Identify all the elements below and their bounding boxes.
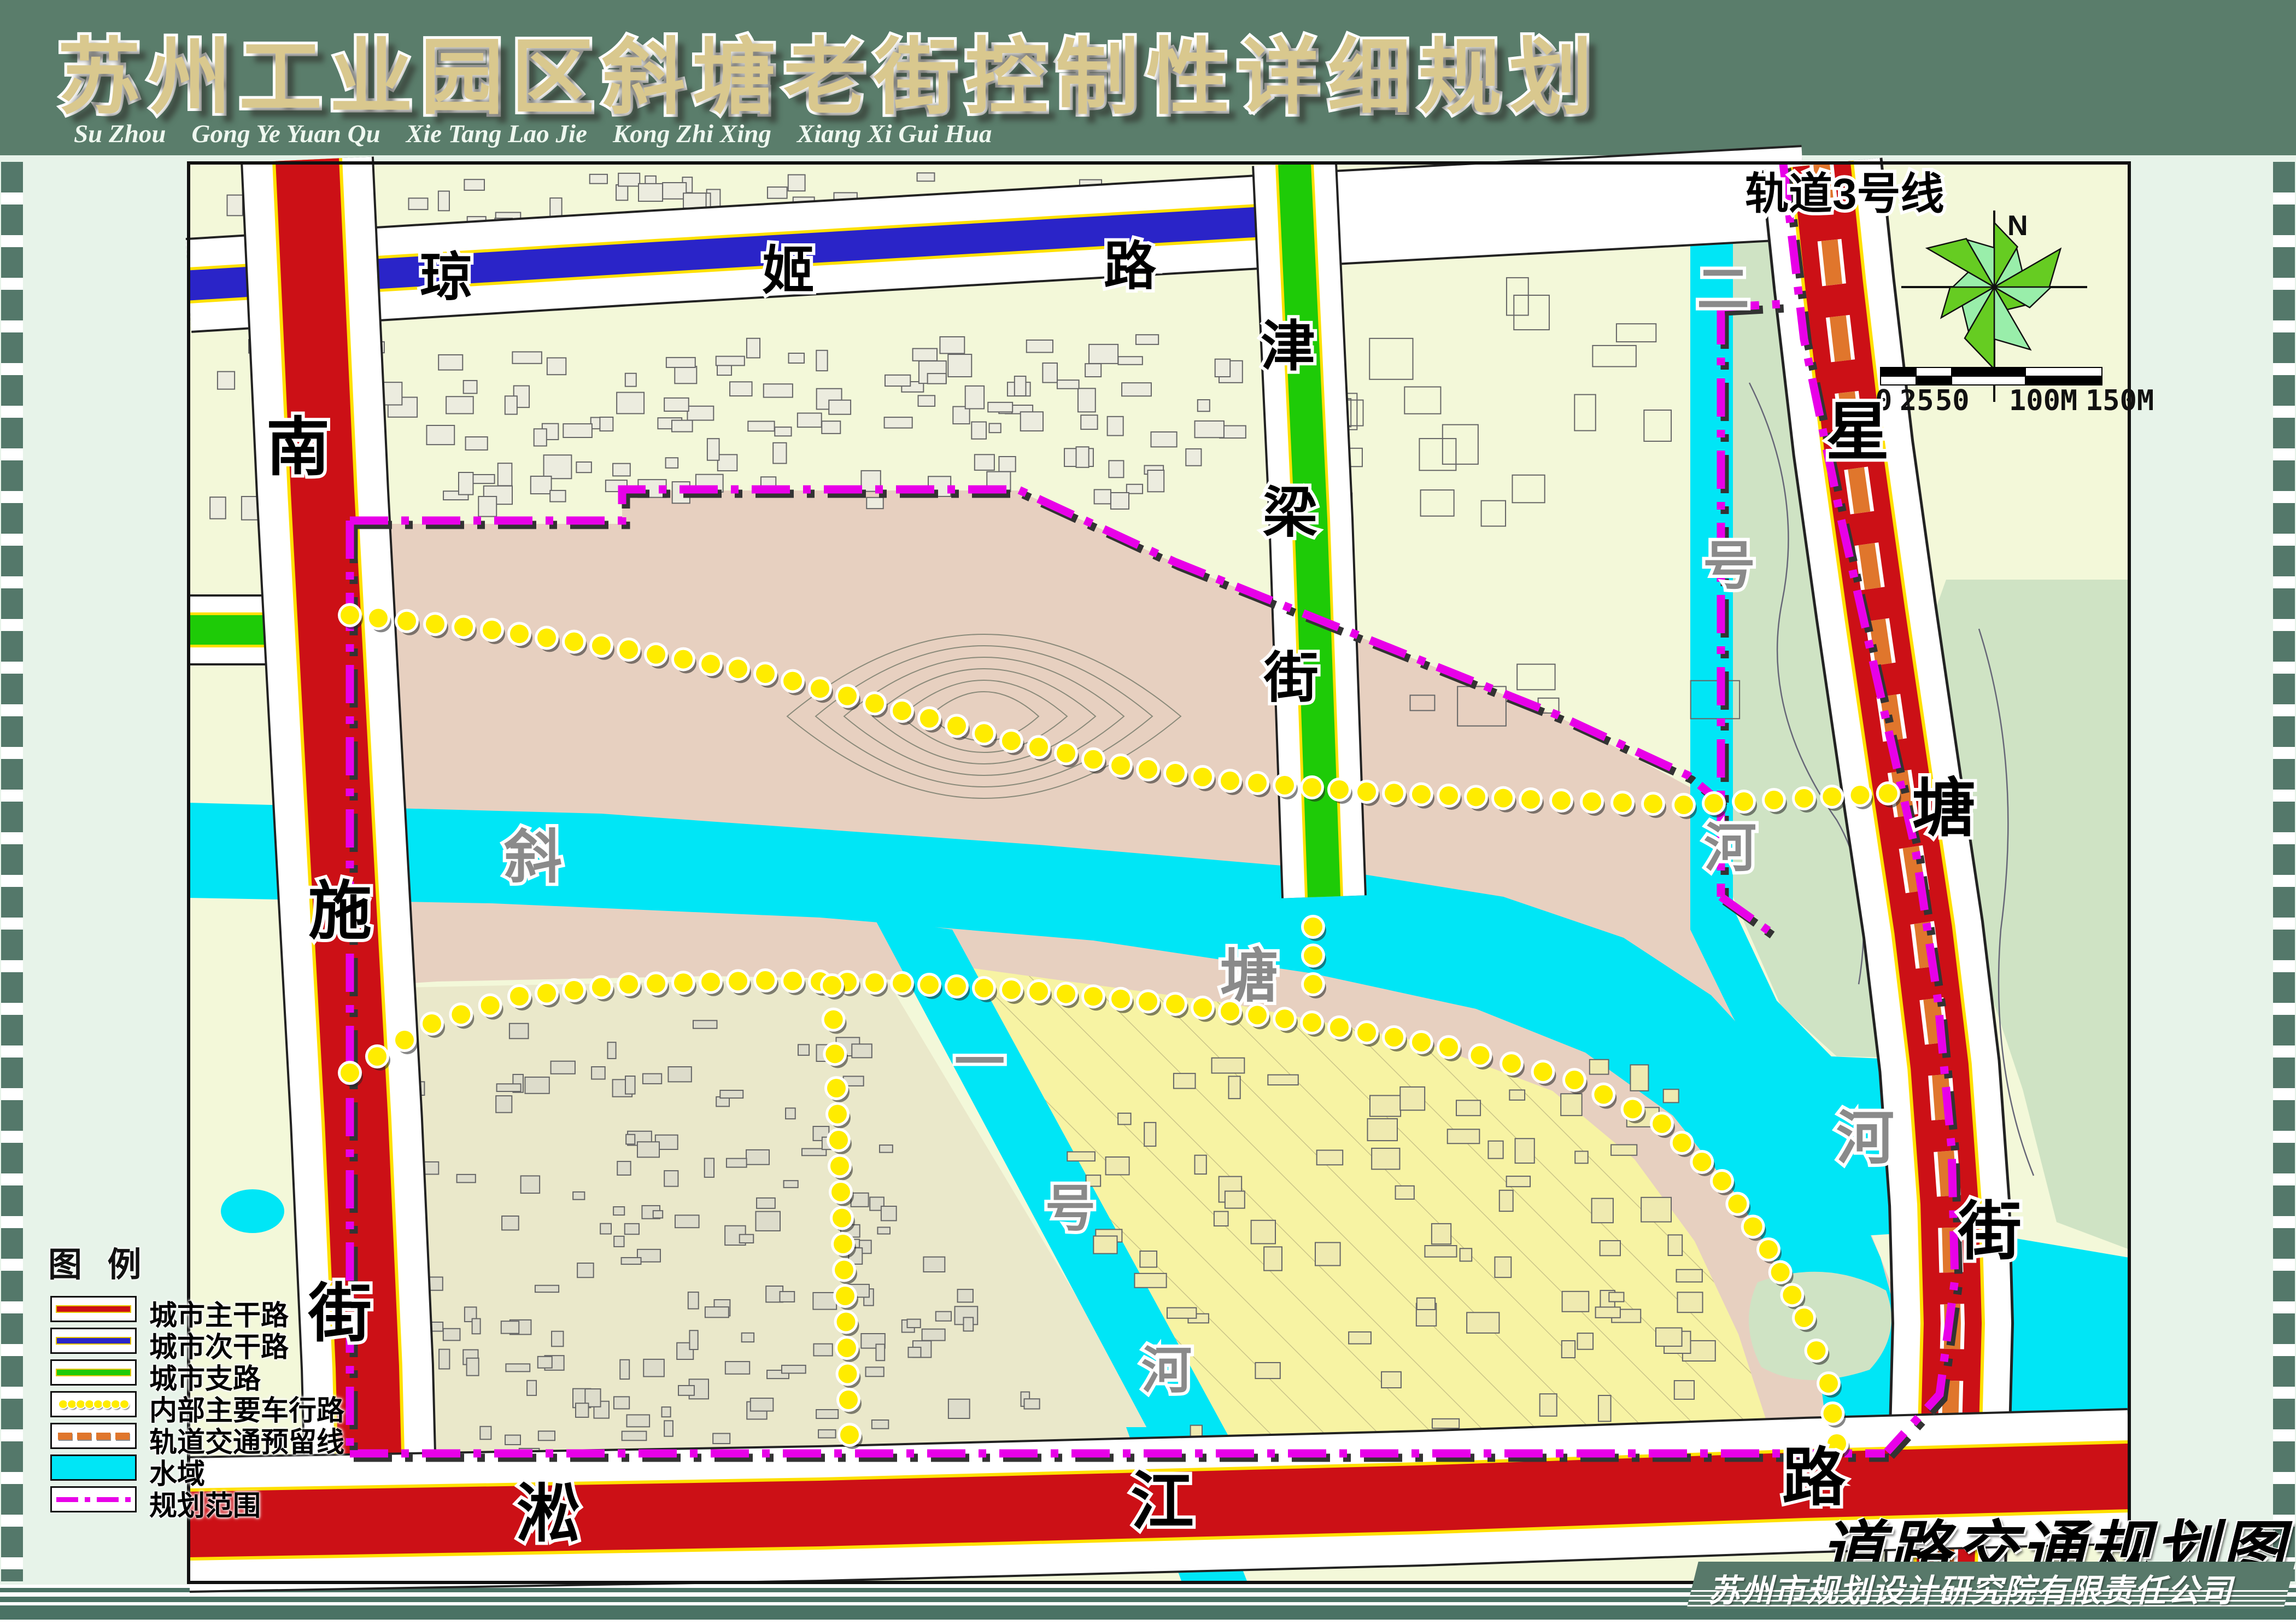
internal-road-dot xyxy=(1057,744,1075,763)
building xyxy=(576,1403,588,1417)
internal-road-dot xyxy=(1330,780,1349,799)
building xyxy=(1078,388,1096,412)
legend-dot xyxy=(59,1400,67,1408)
building xyxy=(600,1224,611,1234)
internal-road-dot xyxy=(1673,1134,1691,1152)
building xyxy=(637,1142,659,1157)
building xyxy=(948,1399,970,1418)
building xyxy=(675,366,696,383)
internal-road-dot xyxy=(1166,995,1185,1013)
building xyxy=(1255,1363,1280,1378)
building xyxy=(1668,1235,1683,1255)
internal-road-dot xyxy=(1771,1263,1790,1282)
scale-seg xyxy=(1952,376,2025,385)
building xyxy=(1609,1293,1624,1302)
building xyxy=(798,1044,809,1055)
legend-dash xyxy=(115,1433,130,1440)
building xyxy=(1598,1395,1611,1421)
building xyxy=(501,1321,519,1333)
building xyxy=(664,398,689,411)
building xyxy=(1174,1073,1196,1088)
building xyxy=(922,1329,945,1341)
building xyxy=(958,1289,973,1302)
internal-road-dot xyxy=(840,1426,859,1444)
building xyxy=(755,1212,780,1231)
building xyxy=(550,490,565,502)
building xyxy=(443,1329,460,1341)
building xyxy=(678,1386,694,1395)
map-label: 一 xyxy=(954,1035,1005,1090)
legend-swatch-line xyxy=(50,1296,137,1322)
legend-swatch-dashes xyxy=(50,1423,137,1449)
internal-road-dot xyxy=(647,974,665,993)
building xyxy=(1111,493,1129,509)
internal-road-dot xyxy=(1084,987,1103,1006)
building xyxy=(1229,1076,1240,1099)
building xyxy=(666,458,678,468)
internal-road-dot xyxy=(1624,1100,1642,1118)
building xyxy=(923,1257,945,1272)
building xyxy=(1147,470,1164,492)
building xyxy=(1122,383,1151,396)
building xyxy=(1600,1241,1620,1255)
building xyxy=(521,1176,540,1193)
rail-line3-label: 轨道3号线 xyxy=(1745,170,1944,218)
internal-road-dot xyxy=(1728,1195,1747,1213)
legend-dash xyxy=(96,1433,110,1440)
internal-road-dot xyxy=(1534,1062,1553,1081)
internal-road-dot xyxy=(836,1287,854,1305)
building xyxy=(576,462,591,472)
legend-dot xyxy=(103,1400,111,1408)
building xyxy=(730,382,752,396)
map-label: 姬 xyxy=(762,242,815,300)
legend-fill xyxy=(52,1456,135,1479)
building xyxy=(1225,1191,1245,1208)
internal-road-dot xyxy=(1193,768,1212,786)
building xyxy=(505,1435,520,1445)
internal-road-dot xyxy=(1521,790,1540,809)
building xyxy=(531,476,552,494)
internal-road-dot xyxy=(1819,1374,1838,1393)
internal-road-dot xyxy=(1275,1009,1294,1028)
legend-line xyxy=(56,1305,131,1313)
building xyxy=(1417,1298,1435,1310)
building xyxy=(1042,363,1057,383)
legend-dot xyxy=(68,1400,76,1408)
building xyxy=(1212,1058,1245,1073)
internal-road-dot xyxy=(1502,1054,1521,1073)
building xyxy=(502,1216,519,1230)
building xyxy=(1372,1148,1399,1169)
building xyxy=(464,179,484,190)
internal-road-dot xyxy=(1583,792,1601,811)
building xyxy=(1027,340,1053,353)
map-label: 号 xyxy=(1045,1181,1096,1237)
building xyxy=(613,464,630,476)
internal-road-dot xyxy=(1807,1341,1826,1360)
building xyxy=(1381,1372,1401,1388)
building xyxy=(798,413,822,428)
building xyxy=(426,425,454,445)
building xyxy=(742,1333,754,1342)
internal-road-dot xyxy=(827,1079,846,1097)
building xyxy=(1167,1308,1196,1318)
building xyxy=(1057,380,1079,389)
building xyxy=(999,457,1015,471)
internal-road-dot xyxy=(619,640,638,659)
internal-road-dot xyxy=(783,672,802,691)
map-label: 二 xyxy=(1697,260,1749,319)
building xyxy=(625,1224,639,1234)
building xyxy=(757,1198,775,1208)
building xyxy=(727,1159,747,1167)
building xyxy=(1194,1155,1206,1174)
internal-road-dot xyxy=(1304,918,1322,936)
map-label: 琼 xyxy=(420,248,472,307)
internal-road-dot xyxy=(341,1064,359,1082)
building xyxy=(789,353,805,363)
building xyxy=(1315,1242,1340,1265)
building xyxy=(880,1145,893,1152)
building xyxy=(764,384,793,397)
building xyxy=(1089,344,1118,364)
building xyxy=(1106,1157,1129,1175)
internal-road-dot xyxy=(1385,1028,1403,1047)
building xyxy=(908,1347,921,1357)
building xyxy=(547,358,566,375)
building xyxy=(467,1358,479,1376)
internal-road-dot xyxy=(839,1365,857,1383)
building xyxy=(816,1410,838,1418)
internal-road-dot xyxy=(426,615,444,633)
map-label: 塘 xyxy=(1912,773,1976,844)
building xyxy=(1118,357,1142,365)
building xyxy=(1562,1341,1575,1358)
building xyxy=(614,1236,624,1247)
building xyxy=(1509,1090,1525,1100)
map-label: 路 xyxy=(1104,237,1157,296)
map-label: 淞 xyxy=(517,1478,580,1549)
internal-road-dot xyxy=(1644,795,1662,813)
building xyxy=(747,338,760,358)
internal-road-dot xyxy=(824,1010,843,1029)
company-name: 苏州市规划设计研究院有限责任公司 xyxy=(1708,1565,2233,1609)
building xyxy=(538,1431,555,1440)
internal-road-dot xyxy=(1735,792,1753,811)
internal-road-dot xyxy=(483,621,501,639)
legend-swatch-dots xyxy=(50,1391,137,1417)
building xyxy=(852,1044,871,1058)
legend-dash xyxy=(58,1433,72,1440)
building xyxy=(668,1067,691,1082)
pond-west xyxy=(221,1189,284,1233)
building xyxy=(705,1158,714,1177)
building xyxy=(512,352,541,363)
building xyxy=(1015,376,1026,396)
building xyxy=(625,1076,635,1094)
map-label: 河 xyxy=(1141,1343,1192,1399)
building xyxy=(614,1397,629,1409)
internal-road-dot xyxy=(341,606,359,624)
building xyxy=(1396,1186,1414,1199)
building xyxy=(577,1263,594,1277)
map-label: 河 xyxy=(1836,1106,1894,1171)
building xyxy=(506,1364,530,1371)
legend-label: 规划范围 xyxy=(149,1483,261,1523)
internal-road-dot xyxy=(835,1261,853,1280)
internal-road-dot xyxy=(834,1235,852,1253)
building xyxy=(816,350,827,371)
building xyxy=(1577,1333,1593,1350)
building xyxy=(573,1192,584,1200)
building xyxy=(948,354,971,377)
building xyxy=(666,358,695,367)
building xyxy=(664,1421,673,1436)
building xyxy=(457,1175,476,1183)
internal-road-dot xyxy=(674,973,693,992)
internal-road-dot xyxy=(756,971,775,990)
building xyxy=(1136,335,1158,344)
building xyxy=(748,421,774,431)
building xyxy=(617,393,644,414)
building xyxy=(965,386,984,409)
building xyxy=(1425,1246,1456,1257)
legend-line xyxy=(56,1337,131,1345)
building xyxy=(872,1420,888,1429)
building xyxy=(466,437,488,450)
building xyxy=(1456,1100,1480,1115)
building xyxy=(616,185,628,200)
internal-road-dot xyxy=(537,984,556,1003)
building xyxy=(408,198,427,209)
internal-road-dot xyxy=(865,973,884,992)
legend-line xyxy=(56,1369,131,1376)
legend-dot xyxy=(77,1400,85,1408)
building xyxy=(1085,364,1101,377)
building xyxy=(590,174,607,184)
internal-road-dot xyxy=(1713,1172,1731,1190)
building xyxy=(773,443,786,464)
internal-road-dot xyxy=(756,664,775,683)
internal-road-dot xyxy=(619,975,638,994)
building xyxy=(498,463,512,486)
building xyxy=(626,1135,635,1144)
map-label: 街 xyxy=(1958,1196,2022,1267)
internal-road-dot xyxy=(397,612,416,630)
building xyxy=(784,1181,798,1188)
building xyxy=(620,1360,629,1379)
company-strip: 苏州市规划设计研究院有限责任公司 xyxy=(1686,1562,2295,1609)
building xyxy=(1024,1399,1040,1409)
building xyxy=(971,422,986,439)
scale-seg xyxy=(1916,367,1952,376)
internal-road-dot xyxy=(1851,786,1870,804)
building xyxy=(446,396,473,413)
internal-road-dot xyxy=(920,975,939,994)
legend-swatch-line xyxy=(50,1328,137,1354)
building xyxy=(478,496,496,517)
internal-road-dot xyxy=(395,1031,414,1049)
building xyxy=(664,1171,678,1187)
building xyxy=(509,1024,529,1039)
internal-road-dot xyxy=(823,976,841,995)
building xyxy=(1186,449,1201,466)
building xyxy=(688,1292,699,1308)
legend-dash xyxy=(77,1433,91,1440)
building xyxy=(1317,1150,1343,1165)
building xyxy=(563,424,592,437)
internal-road-dot xyxy=(1330,1018,1349,1037)
internal-road-dot xyxy=(811,679,829,698)
building xyxy=(1488,1141,1503,1159)
building xyxy=(227,195,242,216)
building xyxy=(534,429,547,446)
building xyxy=(1596,1307,1620,1317)
building xyxy=(1575,1151,1588,1163)
building xyxy=(464,381,477,394)
internal-road-dot xyxy=(1002,980,1021,999)
building xyxy=(1214,1212,1228,1226)
building xyxy=(877,1227,890,1234)
building xyxy=(1592,1199,1613,1223)
internal-road-dot xyxy=(1552,791,1571,810)
internal-road-dot xyxy=(838,687,857,705)
internal-road-dot xyxy=(1111,756,1130,775)
building xyxy=(496,1096,512,1113)
building xyxy=(1118,1113,1131,1125)
building xyxy=(782,1365,806,1373)
building xyxy=(720,1090,743,1098)
map-label: 河 xyxy=(1704,819,1756,878)
internal-road-dot xyxy=(592,636,611,655)
internal-road-dot xyxy=(865,694,884,712)
building xyxy=(1590,1060,1609,1074)
building xyxy=(718,454,737,471)
map-label: 南 xyxy=(266,412,330,483)
building xyxy=(1656,1328,1682,1346)
internal-road-dot xyxy=(1057,985,1075,1003)
building xyxy=(1370,1095,1401,1116)
building xyxy=(780,1292,795,1302)
internal-road-dot xyxy=(1795,789,1813,808)
internal-road-dot xyxy=(893,974,911,992)
building xyxy=(1368,1119,1397,1141)
building xyxy=(639,184,663,201)
building xyxy=(1432,1224,1451,1244)
building xyxy=(693,1020,717,1028)
internal-road-dot xyxy=(369,609,388,627)
building xyxy=(866,498,883,509)
building xyxy=(1093,1236,1117,1253)
building xyxy=(885,417,912,428)
building xyxy=(1500,1190,1513,1211)
building xyxy=(1134,1274,1166,1288)
internal-road-dot xyxy=(729,659,747,678)
internal-road-dot xyxy=(1613,793,1632,812)
internal-road-dot xyxy=(537,628,556,647)
building xyxy=(527,1381,536,1395)
internal-road-dot xyxy=(423,1014,441,1033)
internal-road-dot xyxy=(481,996,500,1015)
building xyxy=(643,1359,664,1377)
building xyxy=(1198,400,1210,411)
internal-road-dot xyxy=(592,978,611,997)
legend-dot xyxy=(85,1400,93,1408)
internal-road-dot xyxy=(368,1047,386,1066)
map-label: 塘 xyxy=(1220,944,1278,1009)
legend-swatch-dashdot xyxy=(50,1486,137,1512)
building xyxy=(617,1161,630,1175)
internal-road-dot xyxy=(975,979,993,997)
building xyxy=(975,454,994,470)
internal-road-dot xyxy=(837,1313,856,1331)
internal-road-dot xyxy=(783,972,802,990)
building xyxy=(1562,1292,1589,1312)
north-letter: N xyxy=(2007,210,2028,242)
building xyxy=(707,439,719,460)
building xyxy=(471,475,495,483)
internal-road-dot xyxy=(1795,1308,1813,1327)
building xyxy=(740,1235,754,1243)
building xyxy=(988,402,1012,412)
building xyxy=(497,1084,521,1091)
scale-seg xyxy=(2025,367,2102,376)
internal-road-dot xyxy=(920,709,939,728)
building xyxy=(551,1061,575,1074)
building xyxy=(1677,1292,1702,1312)
legend-swatch-fill xyxy=(50,1454,137,1481)
internal-road-dot xyxy=(1674,796,1693,814)
internal-road-dot xyxy=(947,977,966,996)
building xyxy=(1108,417,1123,436)
legend-dot xyxy=(94,1400,102,1408)
building xyxy=(687,406,713,420)
building xyxy=(210,497,226,519)
internal-road-dot xyxy=(1304,947,1322,965)
map-canvas: N 02550100M150M 轨道3号线 琼姬路南施街津梁街星塘街淞江路斜塘河… xyxy=(0,0,2296,1624)
internal-road-dot xyxy=(833,1209,851,1228)
building xyxy=(775,427,791,436)
building xyxy=(1432,1419,1459,1428)
building xyxy=(788,175,805,191)
building xyxy=(1081,415,1097,429)
building xyxy=(538,1357,552,1368)
internal-road-dot xyxy=(1304,975,1322,994)
building xyxy=(1251,1220,1275,1244)
internal-road-dot xyxy=(1385,784,1403,802)
building xyxy=(936,1312,951,1321)
legend-dot xyxy=(112,1400,120,1408)
legend-panel: 图 例 城市主干路城市次干路城市支路内部主要车行路轨道交通预留线水域规划范围 xyxy=(48,1237,464,1286)
scale-label: 50 xyxy=(1935,384,1970,417)
building xyxy=(1561,1094,1582,1115)
building xyxy=(618,173,640,186)
building xyxy=(613,1207,624,1215)
building xyxy=(1400,1087,1425,1111)
internal-road-dot xyxy=(452,1005,470,1024)
building xyxy=(472,1319,481,1334)
building xyxy=(1264,1247,1282,1270)
internal-road-dot xyxy=(1439,786,1458,805)
building xyxy=(653,1211,663,1218)
building xyxy=(963,1317,973,1331)
internal-road-dot xyxy=(510,987,529,1006)
building xyxy=(1195,421,1224,437)
building xyxy=(1448,1129,1480,1143)
internal-road-dot xyxy=(1002,732,1021,750)
building xyxy=(622,1258,641,1264)
